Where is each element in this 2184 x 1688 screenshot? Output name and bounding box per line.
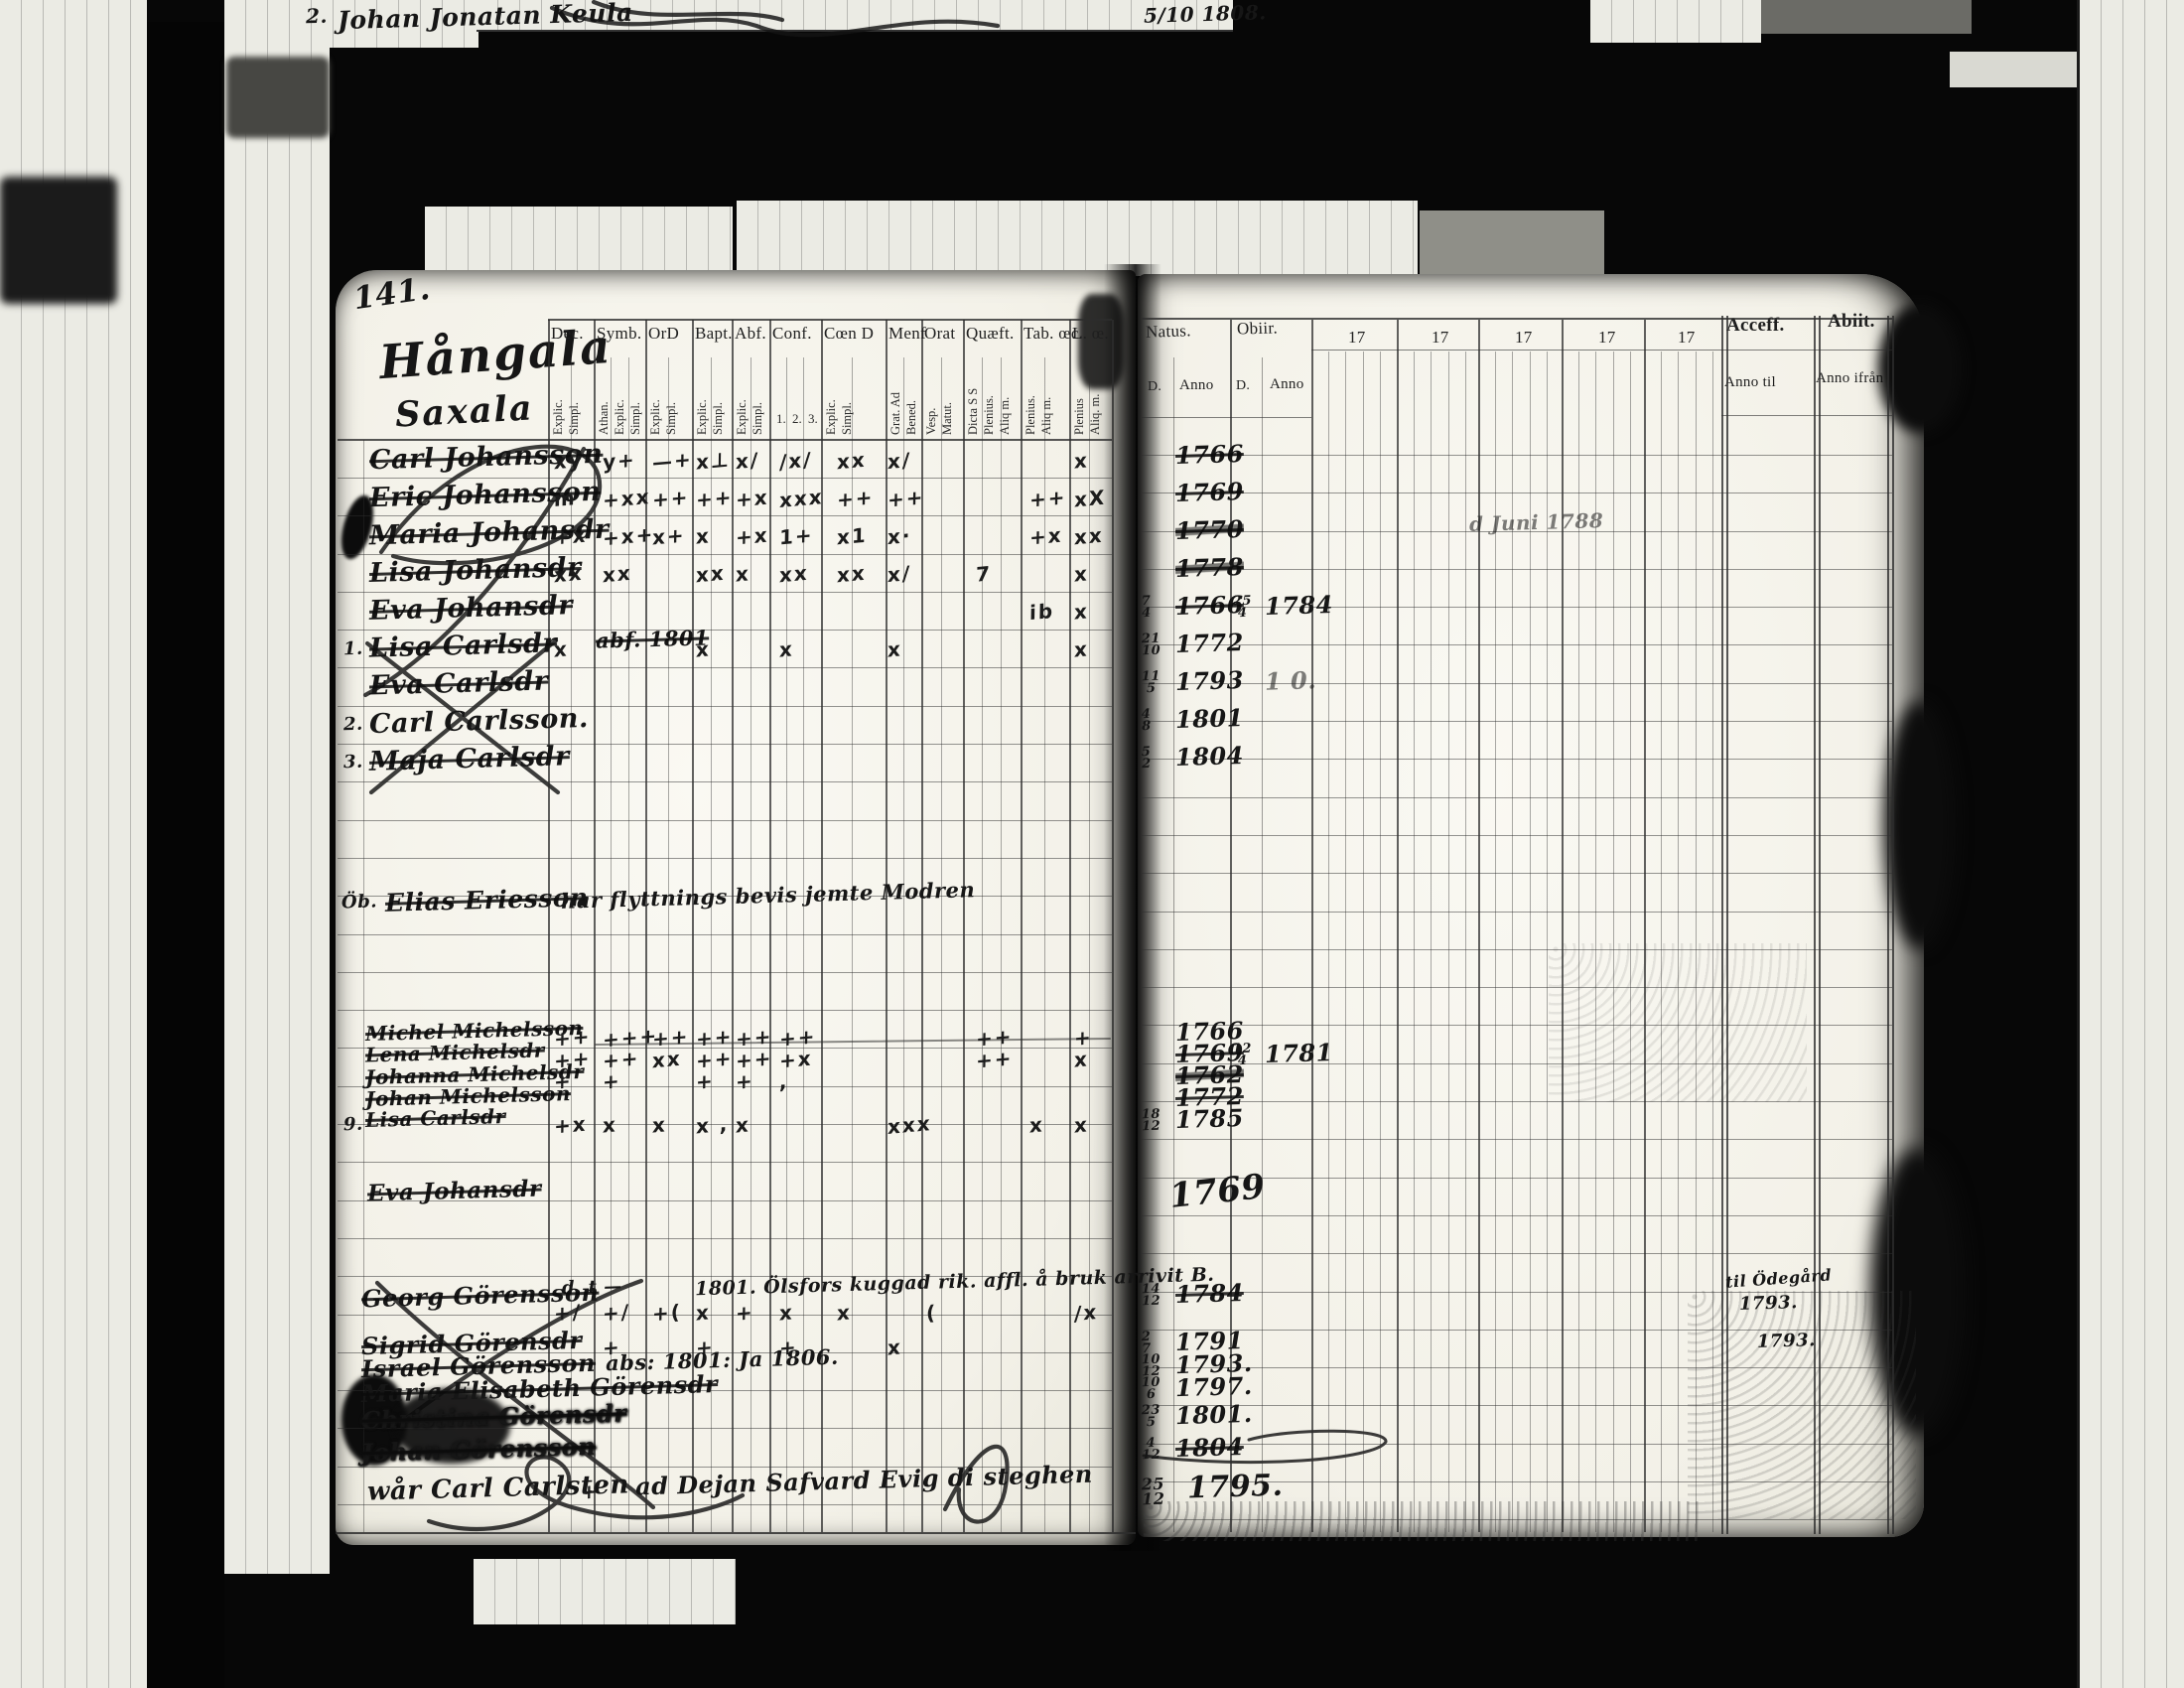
grid-line bbox=[1142, 683, 1892, 684]
film-bottom-sliver bbox=[474, 1559, 736, 1624]
grid-line bbox=[1431, 352, 1432, 1532]
header-obiit: Obiir. bbox=[1237, 318, 1279, 339]
column-subheader-group: Explic.Simpl. bbox=[736, 352, 764, 435]
header-natus-d: D. bbox=[1148, 379, 1161, 395]
attendance-marks: x , bbox=[696, 1111, 730, 1138]
attendance-marks: xxx bbox=[887, 1111, 932, 1139]
attendance-marks: +x bbox=[736, 522, 769, 549]
film-strip-left2 bbox=[224, 40, 330, 1574]
header-decade: 17 bbox=[1678, 328, 1696, 348]
attendance-marks: 1+ bbox=[779, 522, 814, 549]
header-decade: 17 bbox=[1515, 328, 1533, 348]
film-strip-right bbox=[2077, 0, 2184, 1688]
attendance-marks: +/ bbox=[554, 1300, 582, 1327]
grid-line bbox=[963, 320, 965, 1532]
column-subheader: Plenius bbox=[1073, 352, 1086, 435]
attendance-marks: x+ bbox=[652, 522, 686, 549]
attendance-marks: xxx bbox=[779, 485, 824, 512]
grid-line bbox=[1678, 352, 1679, 1532]
attendance-marks: +x bbox=[736, 485, 769, 511]
grid-line bbox=[1142, 987, 1892, 988]
attendance-marks: xx bbox=[652, 1047, 682, 1073]
natus-day: 4 8 bbox=[1142, 709, 1152, 733]
grid-line bbox=[1380, 352, 1381, 1532]
attendance-marks: x bbox=[736, 561, 751, 586]
header-abiit: Abiit. bbox=[1828, 311, 1875, 333]
attendance-marks: x bbox=[1074, 448, 1089, 473]
place-heading-2: Saxala bbox=[394, 387, 534, 435]
grid-line bbox=[338, 1010, 1112, 1011]
grid-line bbox=[1721, 316, 1723, 1534]
attendance-marks: +x bbox=[554, 1111, 588, 1138]
film-top-band3 bbox=[1590, 0, 1761, 43]
microfilm-scan: 2. Johan Jonatan Keula 5/10 1808. 141. H… bbox=[0, 0, 2184, 1688]
natus-year: 1801. bbox=[1175, 1399, 1253, 1430]
column-subheader: Explic. bbox=[696, 352, 709, 435]
natus-year: 1804 bbox=[1175, 741, 1245, 772]
header-accessit-sub: Anno til bbox=[1724, 374, 1776, 391]
grid-line bbox=[1142, 492, 1892, 493]
header-abiit-sub: Anno ifrån bbox=[1816, 370, 1883, 387]
grid-line bbox=[1142, 797, 1892, 798]
grid-line bbox=[1142, 569, 1892, 570]
grid-line bbox=[1887, 316, 1889, 1534]
communion-annotation: d Juni 1788 bbox=[1469, 508, 1604, 536]
row-number: 9. bbox=[343, 1114, 363, 1136]
natus-year: 1785 bbox=[1175, 1103, 1245, 1134]
attendance-marks: xx bbox=[696, 561, 726, 588]
grid-line bbox=[1819, 316, 1821, 1534]
column-subheader-group: Explic.Simpl. bbox=[552, 352, 581, 435]
grid-line bbox=[1142, 1367, 1892, 1368]
attendance-marks: + bbox=[696, 1068, 715, 1094]
grid-line bbox=[548, 319, 1112, 321]
grid-line bbox=[982, 357, 983, 1532]
attendance-marks: x bbox=[696, 636, 711, 661]
prev-frame-rect1 bbox=[425, 207, 733, 276]
column-subheader-group: Grat. AdBened. bbox=[889, 352, 918, 435]
attendance-marks: +x bbox=[1029, 522, 1063, 549]
natus-year: 1793 bbox=[1175, 665, 1245, 696]
natus-year: 1769 bbox=[1175, 477, 1245, 507]
column-header: Orat bbox=[924, 324, 955, 344]
attendance-marks: x bbox=[1074, 1047, 1089, 1071]
grid-line bbox=[1311, 350, 1892, 351]
attendance-marks: x⊥ bbox=[696, 447, 731, 474]
attendance-marks: /x bbox=[1074, 1300, 1099, 1326]
grid-line bbox=[1001, 357, 1002, 1532]
column-subheader: Aliq m. bbox=[1040, 352, 1053, 435]
grid-line bbox=[338, 972, 1112, 973]
grid-line bbox=[1721, 415, 1892, 416]
grid-line bbox=[1262, 357, 1263, 1532]
attendance-marks: 7 bbox=[976, 561, 992, 587]
attendance-marks: + bbox=[603, 1068, 621, 1094]
attendance-marks: x bbox=[1074, 1112, 1089, 1137]
column-subheader: 1. bbox=[776, 411, 786, 427]
row-number: 2. bbox=[343, 714, 363, 736]
grid-line bbox=[1142, 1444, 1892, 1445]
ledger-name: Eva Carlsdr bbox=[369, 665, 549, 701]
attendance-marks: +x+ bbox=[603, 522, 655, 551]
column-header: Quæft. bbox=[966, 324, 1015, 344]
column-subheader-group: Plenius.Aliq m. bbox=[1024, 352, 1053, 435]
ledger-name: Lisa Carlsdr bbox=[369, 628, 558, 663]
grid-line bbox=[1328, 352, 1329, 1532]
column-subheader: Aliq m. bbox=[999, 352, 1012, 435]
natus-day: 7 4 bbox=[1142, 596, 1152, 620]
grid-line bbox=[1142, 912, 1892, 913]
grid-line bbox=[1142, 607, 1892, 608]
grid-line bbox=[1142, 835, 1892, 836]
natus-day: 21 10 bbox=[1142, 633, 1161, 657]
column-subheader-group: Explic.Simpl. bbox=[825, 352, 854, 435]
grid-line bbox=[1311, 320, 1313, 1532]
natus-day: 14 12 bbox=[1142, 1284, 1161, 1308]
header-natus-anno: Anno bbox=[1179, 377, 1214, 394]
attendance-marks: x bbox=[1074, 561, 1089, 586]
attendance-marks: ++ bbox=[696, 485, 734, 511]
attendance-marks: +xx bbox=[603, 485, 651, 512]
column-header: Menf bbox=[888, 324, 926, 344]
attendance-marks: +/ bbox=[603, 1300, 630, 1327]
attendance-marks: x bbox=[652, 1112, 667, 1137]
grid-line bbox=[1814, 316, 1816, 1534]
obiit-day: 25 4 bbox=[1233, 596, 1253, 620]
attendance-marks: x bbox=[603, 1112, 617, 1137]
page-mottle bbox=[1144, 1501, 1700, 1541]
column-subheader: Vesp. bbox=[925, 352, 938, 435]
column-subheader: Simpl. bbox=[841, 352, 854, 435]
attendance-marks: xx bbox=[837, 561, 867, 588]
prev-frame-rect2 bbox=[737, 201, 1418, 276]
column-subheader: Matut. bbox=[941, 352, 954, 435]
row-number: 3. bbox=[343, 752, 363, 774]
header-decade: 17 bbox=[1432, 328, 1449, 348]
grid-line bbox=[1142, 873, 1892, 874]
film-smudge bbox=[0, 177, 117, 304]
page-edge-stain bbox=[1878, 304, 1962, 433]
attendance-marks: ++ bbox=[1029, 485, 1067, 511]
natus-day: 10 6 bbox=[1142, 1377, 1161, 1401]
accessit-year: 1793. bbox=[1757, 1330, 1816, 1352]
column-subheader-group: Explic.Simpl. bbox=[649, 352, 678, 435]
column-subheader: 3. bbox=[808, 411, 818, 427]
attendance-marks: ib bbox=[1029, 599, 1054, 625]
natus-year: 1772 bbox=[1175, 628, 1245, 658]
grid-line bbox=[1397, 320, 1399, 1532]
attendance-marks: ++ bbox=[652, 485, 690, 511]
attendance-marks: —+ bbox=[652, 447, 693, 475]
attendance-marks: x bbox=[736, 1112, 751, 1137]
attendance-marks: x bbox=[554, 636, 569, 661]
page-edge-stain bbox=[1884, 701, 1956, 949]
natus-day: 4 12 bbox=[1142, 1438, 1161, 1462]
grid-line bbox=[1142, 1253, 1892, 1254]
column-header: L. œ. bbox=[1072, 324, 1109, 344]
header-obiit-d: D. bbox=[1236, 378, 1250, 394]
attendance-marks: ++ bbox=[887, 485, 925, 511]
obiit-year: 1784 bbox=[1265, 590, 1334, 621]
ledger-name: Lisa Carlsdr bbox=[365, 1104, 506, 1132]
header-decade: 17 bbox=[1598, 328, 1616, 348]
attendance-marks: xy bbox=[554, 448, 584, 475]
attendance-marks: x bbox=[1029, 1112, 1044, 1137]
grid-line bbox=[941, 357, 942, 1532]
attendance-marks: x bbox=[887, 636, 902, 661]
attendance-marks: x bbox=[1074, 636, 1089, 661]
column-subheader-group: Explic.Simpl. bbox=[696, 352, 725, 435]
attendance-marks: ( bbox=[926, 1300, 938, 1325]
grid-line bbox=[338, 858, 1112, 859]
grid-line bbox=[1478, 320, 1480, 1532]
column-subheader-group: Dicta S SPlenius.Aliq m. bbox=[967, 352, 1011, 435]
grid-line bbox=[1142, 417, 1311, 418]
column-header: Symb. bbox=[597, 324, 641, 344]
grid-line bbox=[338, 515, 1112, 516]
row-number: 1. bbox=[343, 638, 363, 660]
grid-line bbox=[1465, 352, 1466, 1532]
ledger-name: Elias Eriesson bbox=[385, 883, 589, 917]
grid-line bbox=[1142, 721, 1892, 722]
grid-line bbox=[1142, 1063, 1892, 1064]
grid-line bbox=[338, 478, 1112, 479]
column-subheader: Athan. bbox=[598, 352, 611, 435]
grid-line bbox=[1142, 1139, 1892, 1140]
grid-line bbox=[1142, 318, 1892, 320]
grid-line bbox=[1112, 320, 1114, 1532]
ledger-name: Maja Carlsdr bbox=[369, 741, 571, 777]
grid-line bbox=[1448, 352, 1449, 1532]
natus-year: 1770 bbox=[1175, 514, 1245, 545]
attendance-marks: ++ bbox=[837, 485, 875, 511]
ledger-name: Lisa Johansdr bbox=[369, 552, 582, 589]
film-smudge2 bbox=[226, 57, 330, 138]
column-header: Abf. bbox=[735, 324, 766, 344]
grid-line bbox=[1726, 316, 1728, 1534]
attendance-marks: ++ bbox=[976, 1046, 1014, 1072]
attendance-marks: x/ bbox=[887, 561, 912, 587]
column-subheader: Explic. bbox=[649, 352, 662, 435]
attendance-marks: xx bbox=[603, 561, 632, 588]
attendance-marks: x bbox=[696, 1300, 711, 1325]
attendance-marks: + bbox=[581, 1478, 600, 1504]
grid-line bbox=[1142, 1215, 1892, 1216]
attendance-marks: +( bbox=[652, 1300, 682, 1327]
column-subheader: Bened. bbox=[905, 352, 918, 435]
attendance-marks: /x/ bbox=[779, 447, 813, 474]
grid-line bbox=[1892, 316, 1894, 1534]
grid-line bbox=[338, 934, 1112, 935]
top-margin-date: 5/10 1808. bbox=[1144, 0, 1267, 27]
grid-line bbox=[1661, 352, 1662, 1532]
column-subheader: Dicta S S bbox=[967, 352, 980, 435]
grid-line bbox=[1142, 455, 1892, 456]
column-subheader: Simpl. bbox=[568, 352, 581, 435]
natus-day: 5 2 bbox=[1142, 747, 1152, 771]
attendance-marks: x1 bbox=[837, 523, 868, 550]
column-header: Dec. bbox=[551, 324, 584, 344]
ledger-name: Eva Johansdr bbox=[367, 1176, 542, 1207]
column-subheader: 2. bbox=[792, 411, 802, 427]
grid-line bbox=[1613, 352, 1614, 1532]
natus-day: 18 12 bbox=[1142, 1109, 1161, 1133]
attendance-marks: x bbox=[837, 1300, 852, 1325]
natus-day: 23 5 bbox=[1142, 1405, 1161, 1429]
accessit-year: 1793. bbox=[1739, 1292, 1798, 1315]
attendance-marks: x bbox=[779, 1300, 794, 1325]
grid-line bbox=[1142, 1025, 1892, 1026]
attendance-marks: xx bbox=[837, 448, 867, 475]
film-top-gray bbox=[1761, 0, 1972, 34]
grid-line bbox=[1142, 949, 1892, 950]
column-header: Bapt. bbox=[695, 324, 733, 344]
natus-year: 1801 bbox=[1175, 703, 1245, 734]
column-subheader-group: Vesp.Matut. bbox=[925, 352, 954, 435]
attendance-marks: y+ bbox=[603, 447, 636, 474]
grid-line bbox=[1363, 352, 1364, 1532]
header-natus: Natus. bbox=[1146, 321, 1191, 343]
natus-year: 1766 bbox=[1175, 439, 1245, 470]
attendance-marks: xx bbox=[554, 561, 584, 588]
attendance-marks: x bbox=[1074, 599, 1089, 624]
natus-year: 1804 bbox=[1175, 1432, 1245, 1463]
column-subheader: Explic. bbox=[825, 352, 838, 435]
natus-year: 1778 bbox=[1175, 552, 1245, 583]
ledger-name: Carl Carlsson. bbox=[369, 703, 590, 740]
column-subheader: Simpl. bbox=[629, 352, 642, 435]
grid-line bbox=[338, 1238, 1112, 1239]
column-subheader: Explic. bbox=[552, 352, 565, 435]
column-header: Cœn D bbox=[824, 324, 874, 344]
natus-year: 1795. bbox=[1187, 1469, 1284, 1506]
grid-line bbox=[1644, 320, 1646, 1532]
attendance-marks: x bbox=[887, 1335, 902, 1359]
grid-line bbox=[338, 1315, 1112, 1316]
attendance-marks: + bbox=[736, 1300, 754, 1326]
grid-line bbox=[1142, 644, 1892, 645]
grid-line bbox=[1696, 352, 1697, 1532]
column-subheader: Explic. bbox=[736, 352, 749, 435]
grid-line bbox=[338, 439, 1112, 441]
grid-line bbox=[336, 1532, 1136, 1534]
grid-line bbox=[1069, 320, 1071, 1532]
film-black-bar bbox=[147, 22, 224, 1688]
grid-line bbox=[338, 820, 1112, 821]
attendance-marks: x· bbox=[887, 523, 912, 549]
header-obiit-anno: Anno bbox=[1270, 376, 1304, 393]
obiit-year: 1 0. bbox=[1265, 665, 1317, 695]
grid-line bbox=[1021, 320, 1023, 1532]
attendance-marks: x/ bbox=[887, 448, 912, 474]
grid-line bbox=[1142, 1101, 1892, 1102]
natus-year: 1784 bbox=[1175, 1278, 1245, 1309]
grid-line bbox=[1142, 759, 1892, 760]
grid-line bbox=[1142, 1519, 1892, 1520]
grid-line bbox=[338, 781, 1112, 782]
attendance-marks: x bbox=[696, 523, 711, 548]
attendance-marks: + bbox=[736, 1068, 754, 1094]
column-header: OrD bbox=[648, 324, 679, 344]
grid-line bbox=[1142, 1405, 1892, 1406]
header-decade: 17 bbox=[1348, 328, 1366, 348]
column-subheader: Simpl. bbox=[665, 352, 678, 435]
attendance-marks: xx bbox=[1074, 523, 1104, 550]
grid-line bbox=[1712, 352, 1713, 1532]
obiit-year: 1781 bbox=[1265, 1038, 1334, 1068]
column-subheader: Explic. bbox=[614, 352, 626, 435]
attendance-marks: x/ bbox=[736, 448, 760, 474]
column-subheader: Grat. Ad bbox=[889, 352, 902, 435]
grid-line bbox=[1414, 352, 1415, 1532]
column-subheader-group: PleniusAliq. m. bbox=[1073, 352, 1102, 435]
margin-note: abf. 1801 bbox=[596, 625, 710, 652]
top-margin-number: 2. bbox=[306, 4, 329, 29]
ledger-name: Eva Johansdr bbox=[369, 590, 574, 627]
film-top-sliver bbox=[1950, 52, 2077, 87]
grid-line bbox=[1630, 352, 1631, 1532]
natus-year: 1797. bbox=[1175, 1371, 1253, 1402]
grid-line bbox=[1562, 320, 1564, 1532]
row-prefix: Öb. bbox=[341, 892, 378, 914]
attendance-marks: m bbox=[554, 486, 577, 511]
column-subheader-group: Athan.Explic.Simpl. bbox=[598, 352, 641, 435]
grid-line bbox=[1345, 352, 1346, 1532]
column-subheader: Aliq. m. bbox=[1089, 352, 1102, 435]
attendance-marks: +x bbox=[554, 522, 588, 549]
column-header: Conf. bbox=[772, 324, 812, 344]
column-subheader: Simpl. bbox=[712, 352, 725, 435]
attendance-marks: , bbox=[779, 1069, 789, 1094]
natus-day: 11 5 bbox=[1142, 671, 1161, 695]
attendance-marks: xx bbox=[779, 561, 809, 588]
prev-frame-rect3 bbox=[1420, 211, 1604, 276]
column-subheader: Plenius. bbox=[983, 352, 996, 435]
natus-day: 25 12 bbox=[1142, 1477, 1165, 1507]
column-subheader: Plenius. bbox=[1024, 352, 1037, 435]
grid-line bbox=[338, 1162, 1112, 1163]
attendance-marks: x bbox=[779, 636, 794, 661]
attendance-marks: xX bbox=[1074, 486, 1107, 512]
column-subheader: Simpl. bbox=[751, 352, 764, 435]
